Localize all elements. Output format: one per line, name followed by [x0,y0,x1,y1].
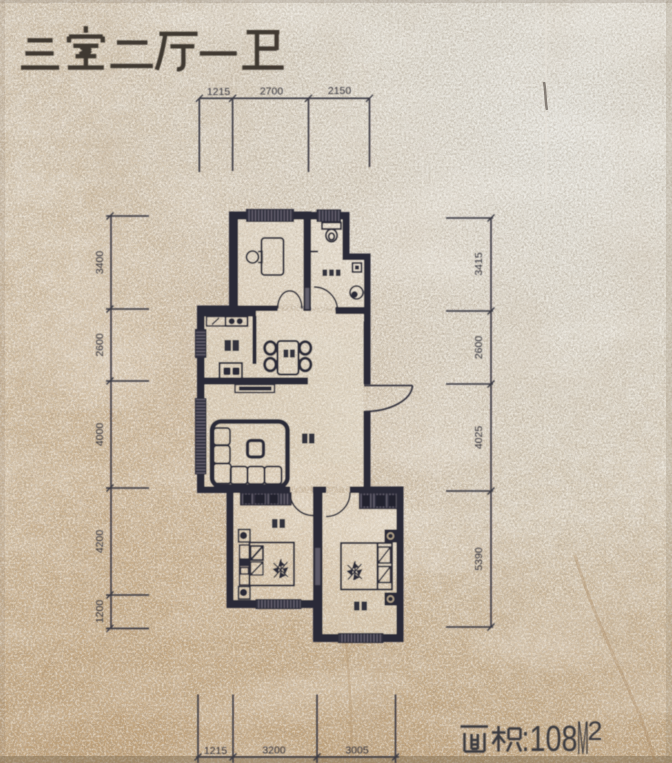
svg-text::108: :108 [522,718,578,759]
svg-text:2150: 2150 [328,85,352,97]
svg-text:5390: 5390 [473,547,485,571]
svg-text:4000: 4000 [94,423,106,447]
svg-text:4025: 4025 [473,426,485,450]
svg-text:3200: 3200 [262,745,286,757]
svg-text:3005: 3005 [345,745,369,757]
svg-text:2600: 2600 [94,333,106,357]
svg-text:1200: 1200 [94,600,106,624]
svg-text:2: 2 [588,716,603,746]
svg-text:2600: 2600 [473,336,485,360]
svg-text:4200: 4200 [94,530,106,554]
svg-text:2700: 2700 [260,86,284,98]
svg-text:3400: 3400 [94,251,106,275]
svg-text:1215: 1215 [207,86,231,98]
svg-text:1215: 1215 [204,745,228,757]
svg-text:3415: 3415 [473,252,485,276]
